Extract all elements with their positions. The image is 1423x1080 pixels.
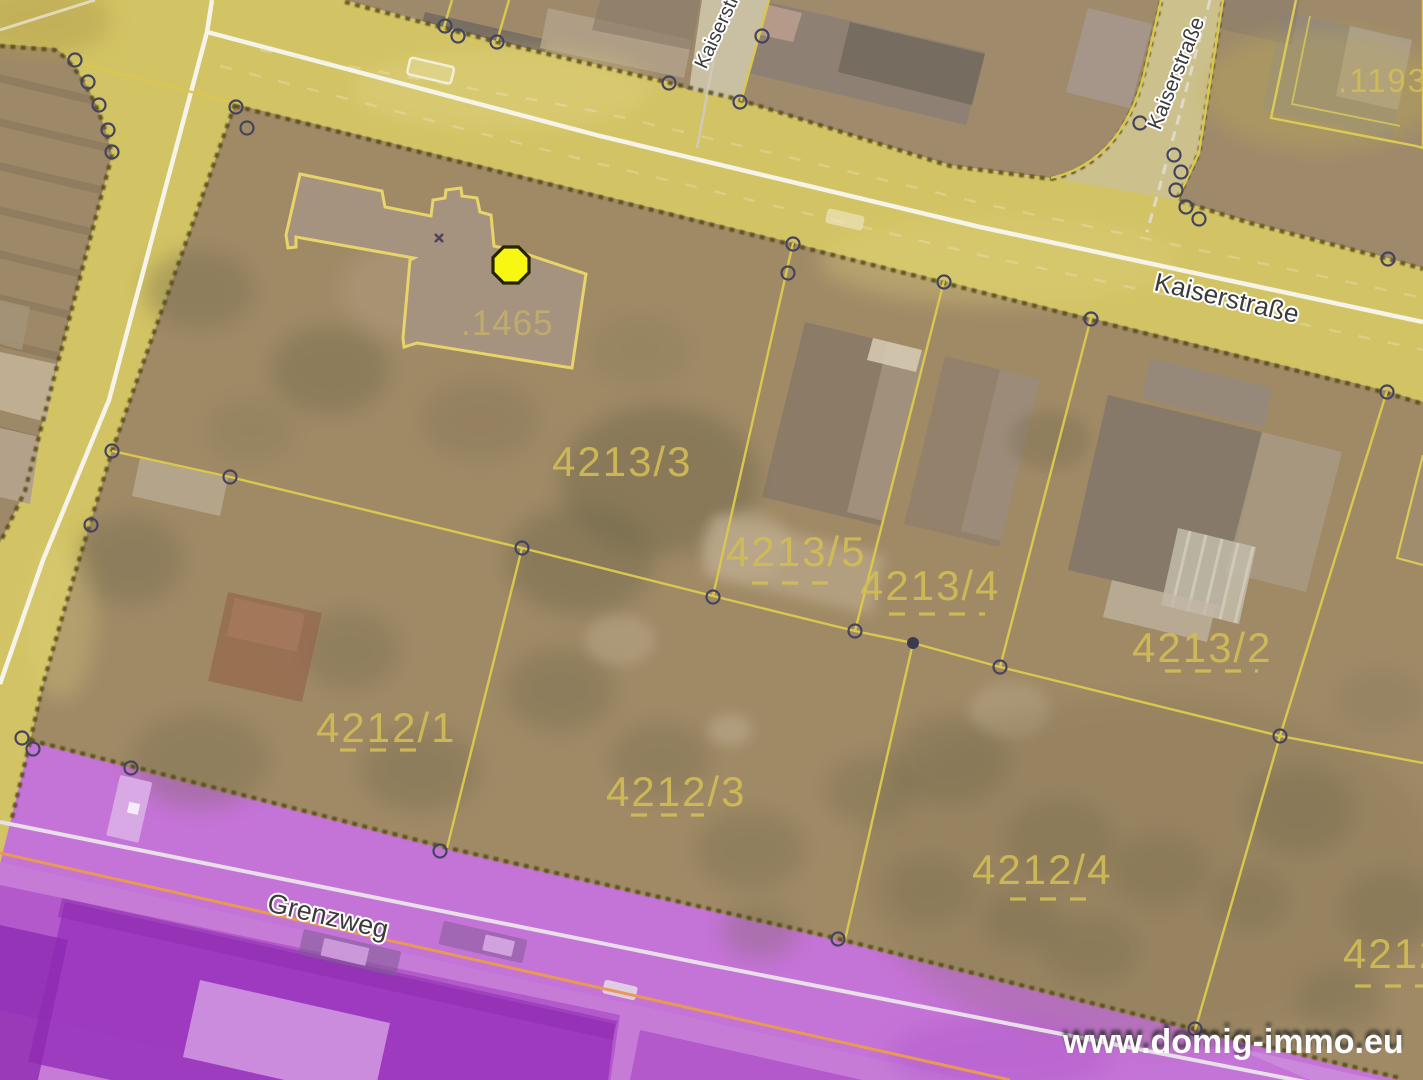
svg-text:.1193: .1193 (1338, 62, 1423, 99)
svg-text:www.domig-immo.eu: www.domig-immo.eu (1062, 1023, 1404, 1061)
svg-text:4212: 4212 (1343, 930, 1423, 977)
svg-text:4213/4: 4213/4 (860, 562, 1000, 609)
svg-text:4212/4: 4212/4 (972, 846, 1112, 893)
svg-text:4213/2: 4213/2 (1132, 624, 1272, 671)
svg-text:4212/1: 4212/1 (316, 704, 456, 751)
svg-text:4213/3: 4213/3 (552, 438, 692, 485)
svg-text:.1465: .1465 (461, 304, 554, 343)
svg-text:4213/5: 4213/5 (726, 528, 866, 575)
svg-text:4212/3: 4212/3 (606, 768, 746, 815)
